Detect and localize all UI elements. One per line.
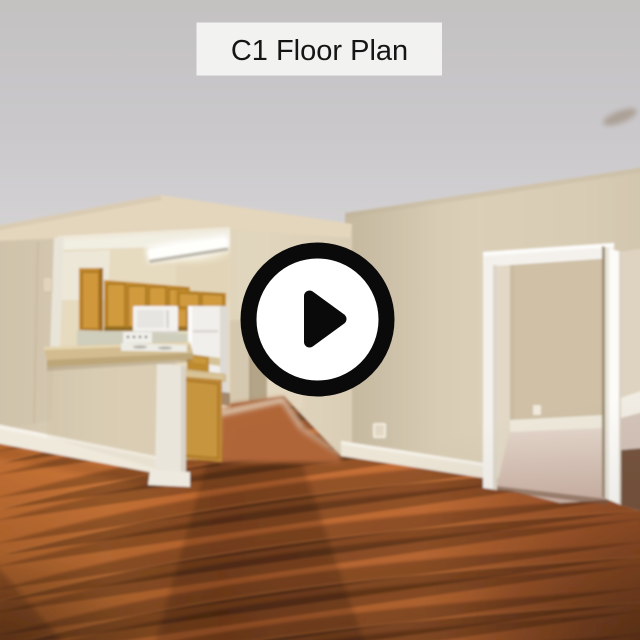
svg-text:C1 Floor Plan: C1 Floor Plan: [231, 35, 408, 67]
